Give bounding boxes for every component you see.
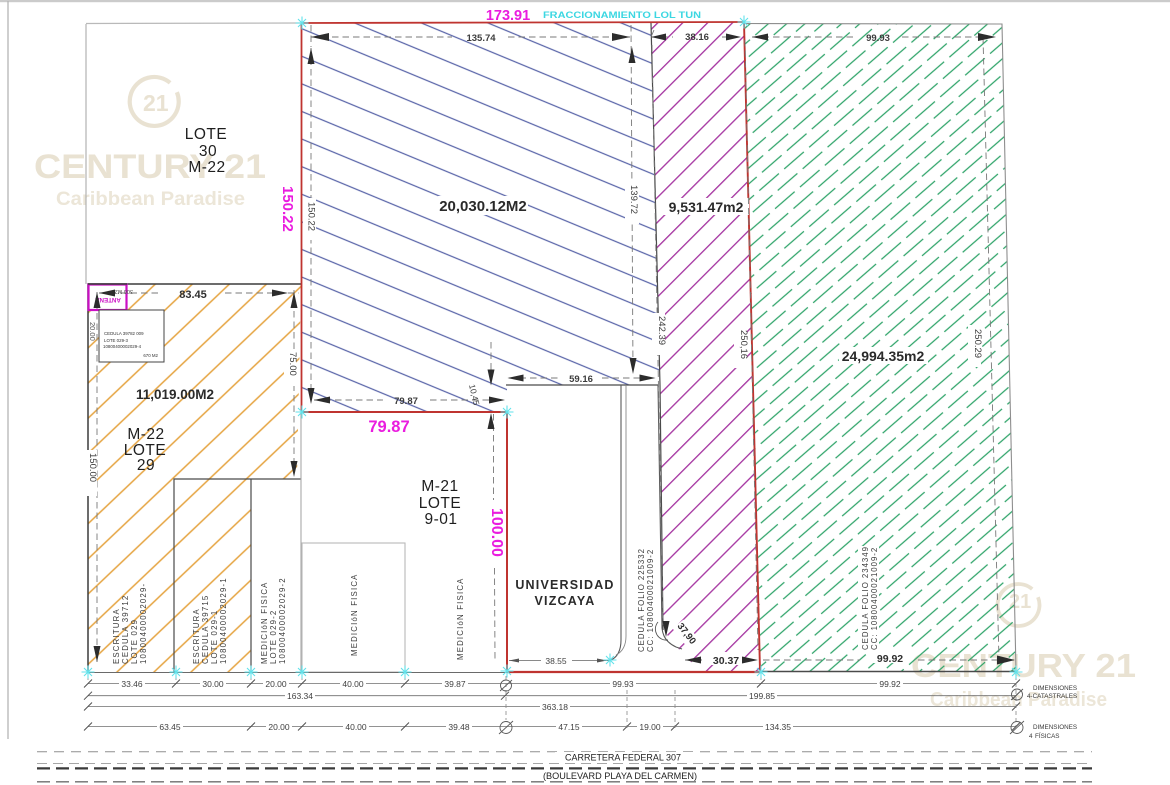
svg-text:99.92: 99.92 — [879, 679, 901, 689]
svg-text:150.22: 150.22 — [279, 186, 296, 232]
svg-text:79.87: 79.87 — [394, 396, 418, 407]
svg-text:ESCRITURA: ESCRITURA — [112, 608, 121, 664]
svg-text:30: 30 — [199, 143, 217, 160]
svg-text:99.93: 99.93 — [612, 679, 634, 689]
svg-text:MEDICIóN FISICA: MEDICIóN FISICA — [350, 573, 359, 656]
svg-text:30.37: 30.37 — [713, 655, 739, 667]
svg-text:20.00: 20.00 — [265, 679, 287, 689]
svg-text:33.46: 33.46 — [121, 679, 143, 689]
svg-text:10800400002029-2: 10800400002029-2 — [278, 577, 287, 664]
svg-text:83.45: 83.45 — [179, 289, 207, 301]
svg-text:173.91: 173.91 — [486, 8, 530, 24]
svg-text:4-CATASTRALES: 4-CATASTRALES — [1027, 693, 1077, 700]
svg-text:40.00: 40.00 — [345, 722, 367, 732]
svg-text:134.35: 134.35 — [765, 722, 791, 732]
svg-text:47.15: 47.15 — [558, 722, 580, 732]
svg-text:20.00: 20.00 — [268, 722, 290, 732]
svg-text:21: 21 — [143, 90, 169, 116]
svg-text:CC: 10800400021009-2: CC: 10800400021009-2 — [870, 547, 879, 650]
svg-text:9-01: 9-01 — [424, 511, 457, 528]
svg-text:UNIVERSIDAD: UNIVERSIDAD — [515, 578, 614, 592]
svg-text:24,994.35m2: 24,994.35m2 — [842, 348, 925, 364]
svg-text:CEDULA FOLIO 225332: CEDULA FOLIO 225332 — [637, 548, 646, 652]
svg-text:40.00: 40.00 — [342, 679, 364, 689]
svg-text:M-22: M-22 — [127, 426, 164, 443]
svg-text:242.39: 242.39 — [656, 316, 667, 345]
svg-text:163.34: 163.34 — [287, 691, 313, 701]
svg-text:CEDULA 39715: CEDULA 39715 — [201, 595, 210, 664]
svg-text:100.00: 100.00 — [488, 508, 505, 557]
svg-text:150.00: 150.00 — [87, 453, 98, 482]
svg-text:LOTE 029: LOTE 029 — [130, 619, 139, 664]
svg-text:4: 4 — [1029, 733, 1033, 740]
svg-text:79.87: 79.87 — [368, 418, 409, 436]
svg-text:CC: 10800400021009-2: CC: 10800400021009-2 — [646, 549, 655, 652]
svg-text:10800400002029-4: 10800400002029-4 — [103, 344, 142, 349]
svg-text:63.45: 63.45 — [159, 722, 181, 732]
svg-text:250,16: 250,16 — [738, 330, 749, 359]
svg-text:38.16: 38.16 — [685, 32, 709, 43]
svg-text:38.55: 38.55 — [545, 656, 567, 666]
svg-text:20.00: 20.00 — [88, 322, 97, 341]
svg-text:139.72: 139.72 — [628, 185, 639, 214]
svg-text:MEDICIóN FISICA: MEDICIóN FISICA — [260, 581, 269, 664]
svg-text:CEDULA 39782 009: CEDULA 39782 009 — [104, 331, 144, 336]
svg-text:(BOULEVARD PLAYA DEL CARMEN): (BOULEVARD PLAYA DEL CARMEN) — [543, 771, 697, 781]
svg-text:M-21: M-21 — [421, 478, 458, 495]
svg-text:FRACCIONAMIENTO LOL TUN: FRACCIONAMIENTO LOL TUN — [543, 10, 701, 20]
svg-text:9,531.47m2: 9,531.47m2 — [669, 199, 744, 215]
svg-text:363.18: 363.18 — [542, 702, 568, 712]
svg-text:10800400002029-: 10800400002029- — [139, 583, 148, 664]
svg-text:10800400002029-1: 10800400002029-1 — [219, 577, 228, 664]
svg-text:CENTURY 21: CENTURY 21 — [34, 148, 266, 186]
svg-text:199.85: 199.85 — [749, 691, 775, 701]
svg-text:30.00: 30.00 — [202, 679, 224, 689]
svg-text:M-22: M-22 — [188, 159, 225, 176]
svg-text:DIMENSIONES: DIMENSIONES — [1033, 724, 1077, 731]
svg-text:99.93: 99.93 — [866, 33, 890, 44]
svg-text:39.87: 39.87 — [444, 679, 466, 689]
svg-text:670 M2: 670 M2 — [143, 353, 158, 358]
svg-text:20,030.12M2: 20,030.12M2 — [439, 198, 527, 215]
svg-text:VIZCAYA: VIZCAYA — [535, 594, 596, 608]
svg-text:59.16: 59.16 — [569, 374, 593, 385]
svg-text:LOTE 029-3: LOTE 029-3 — [104, 338, 128, 343]
svg-text:FÍSICAS: FÍSICAS — [1035, 731, 1060, 740]
svg-text:39.48: 39.48 — [448, 722, 470, 732]
svg-text:LOTE: LOTE — [185, 126, 227, 143]
svg-text:LOTE 029-1: LOTE 029-1 — [210, 610, 219, 664]
svg-text:Caribbean Paradise: Caribbean Paradise — [56, 188, 245, 210]
svg-text:19.00: 19.00 — [639, 722, 661, 732]
svg-text:CEDULA FOLIO 234349: CEDULA FOLIO 234349 — [861, 546, 870, 650]
svg-text:DIMENSIONES: DIMENSIONES — [1033, 685, 1077, 692]
svg-text:MEDICIóN FISICA: MEDICIóN FISICA — [456, 577, 465, 660]
svg-text:75.00: 75.00 — [287, 352, 298, 376]
svg-text:29: 29 — [137, 457, 155, 474]
svg-text:LOTE: LOTE — [419, 495, 461, 512]
svg-text:250.29: 250.29 — [972, 329, 983, 358]
svg-text:CARRETERA FEDERAL 307: CARRETERA FEDERAL 307 — [565, 753, 681, 763]
svg-text:150.22: 150.22 — [306, 202, 317, 231]
svg-text:135.74: 135.74 — [466, 33, 496, 44]
svg-text:LOTE 029-2: LOTE 029-2 — [269, 610, 278, 664]
svg-text:11,019.00M2: 11,019.00M2 — [136, 387, 214, 402]
svg-text:ESCRITURA: ESCRITURA — [192, 608, 201, 664]
svg-text:CEDULA 39712: CEDULA 39712 — [121, 595, 130, 664]
svg-text:99.92: 99.92 — [877, 653, 903, 665]
